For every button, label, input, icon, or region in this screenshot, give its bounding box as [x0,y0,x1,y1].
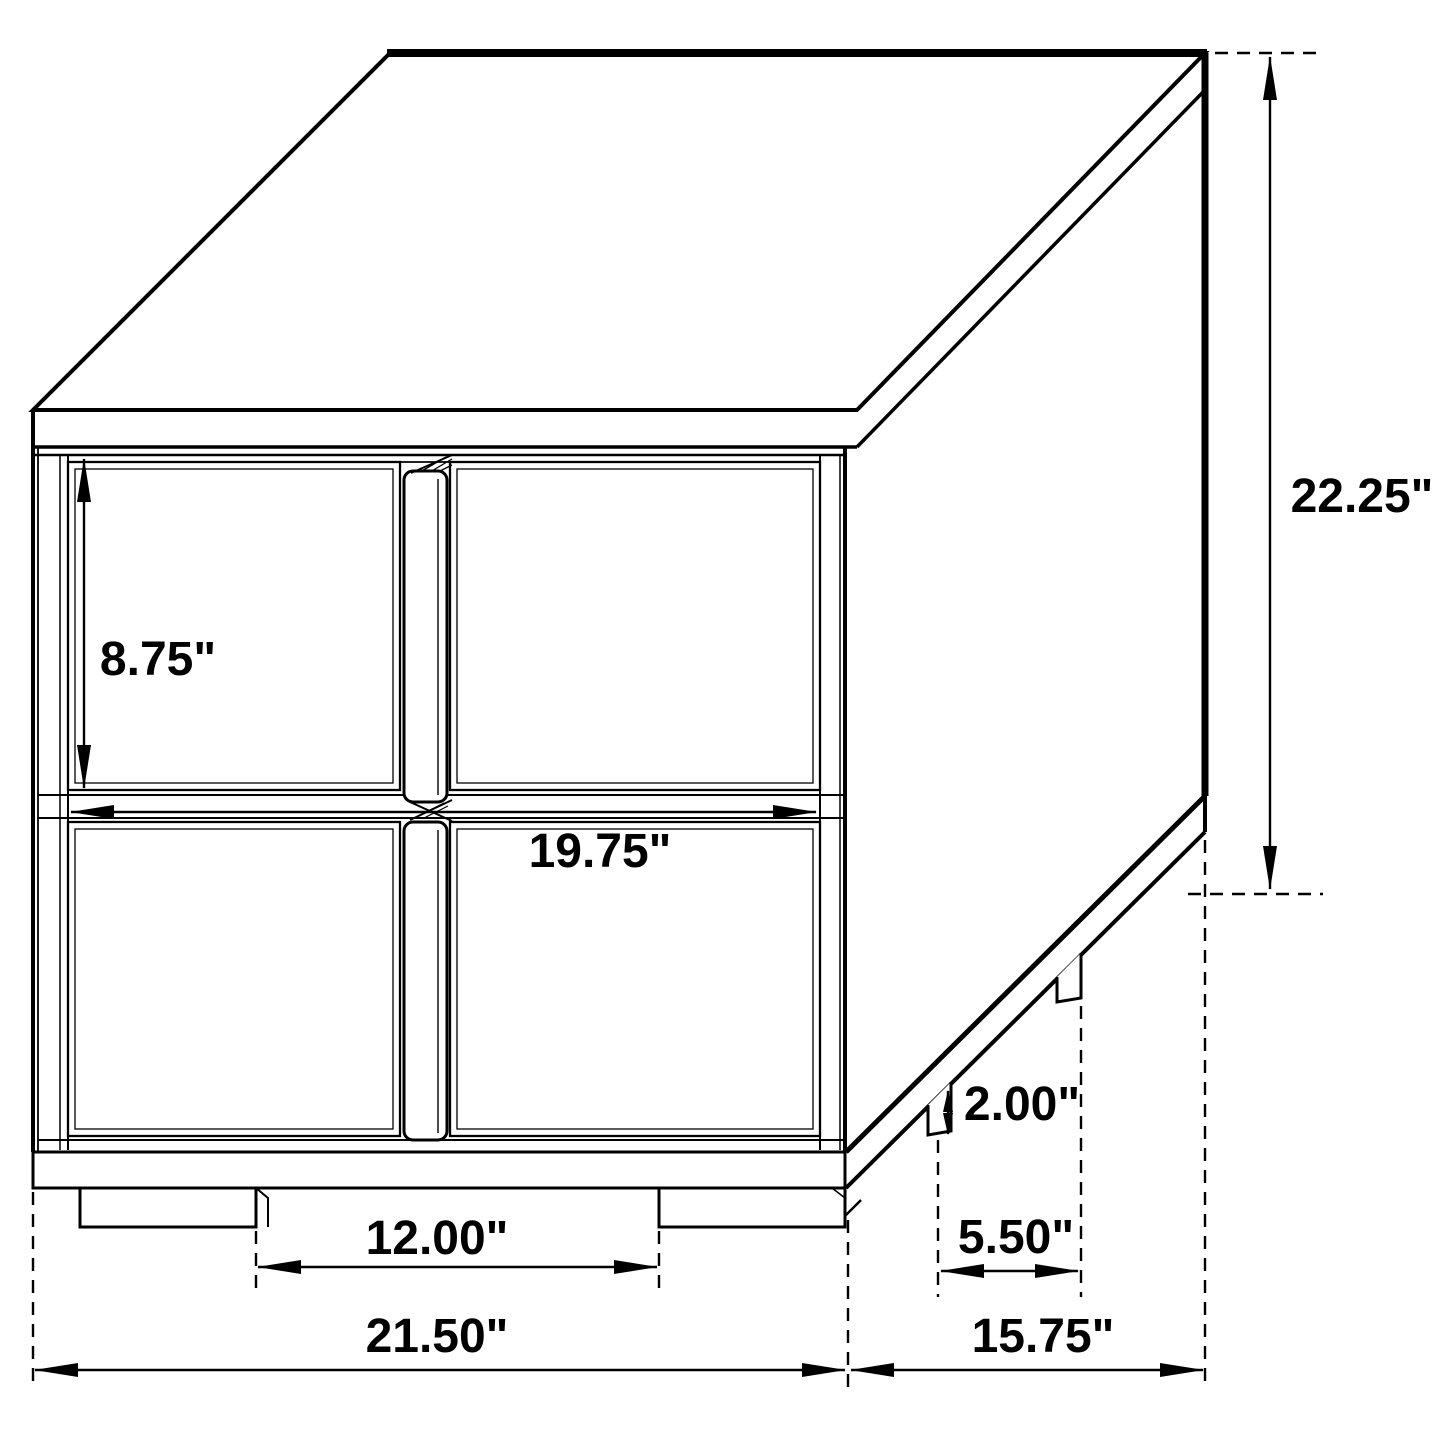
dim-label-drawer-width: 19.75" [529,825,672,878]
side-base-rail-bottom-edge [846,832,1205,1188]
dim-label-side-leg-spacing: 5.50" [958,1211,1074,1264]
dim-label-drawer-face-height: 8.75" [100,633,216,686]
side-foot-back [1057,953,1081,1002]
dim-label-overall-height: 22.25" [1291,470,1434,523]
nightstand-line-drawing: 8.75" 19.75" 22.25" 2.00" 5.50" 12.00" 2… [0,0,1445,1445]
front-plinth [33,1152,845,1188]
dim-label-leg-height: 2.00" [964,1078,1080,1131]
dim-label-overall-width: 21.50" [366,1310,509,1363]
drawer-panel-upper-right [450,462,820,790]
front-foot-right [659,1188,845,1227]
front-foot-left-bevel [256,1188,268,1227]
dim-label-front-leg-spacing: 12.00" [366,1212,509,1265]
dimension-diagram-canvas: 8.75" 19.75" 22.25" 2.00" 5.50" 12.00" 2… [0,0,1445,1445]
drawer-panel-upper-left [68,462,400,790]
front-foot-left [80,1188,256,1227]
dim-label-overall-depth: 15.75" [972,1310,1115,1363]
top-surface [33,53,1205,410]
side-base-front-corner-detail [845,1188,861,1216]
drawer-handle-upper [404,471,447,802]
drawer-handle-lower [404,822,447,1140]
drawer-panel-lower-left [68,822,400,1136]
